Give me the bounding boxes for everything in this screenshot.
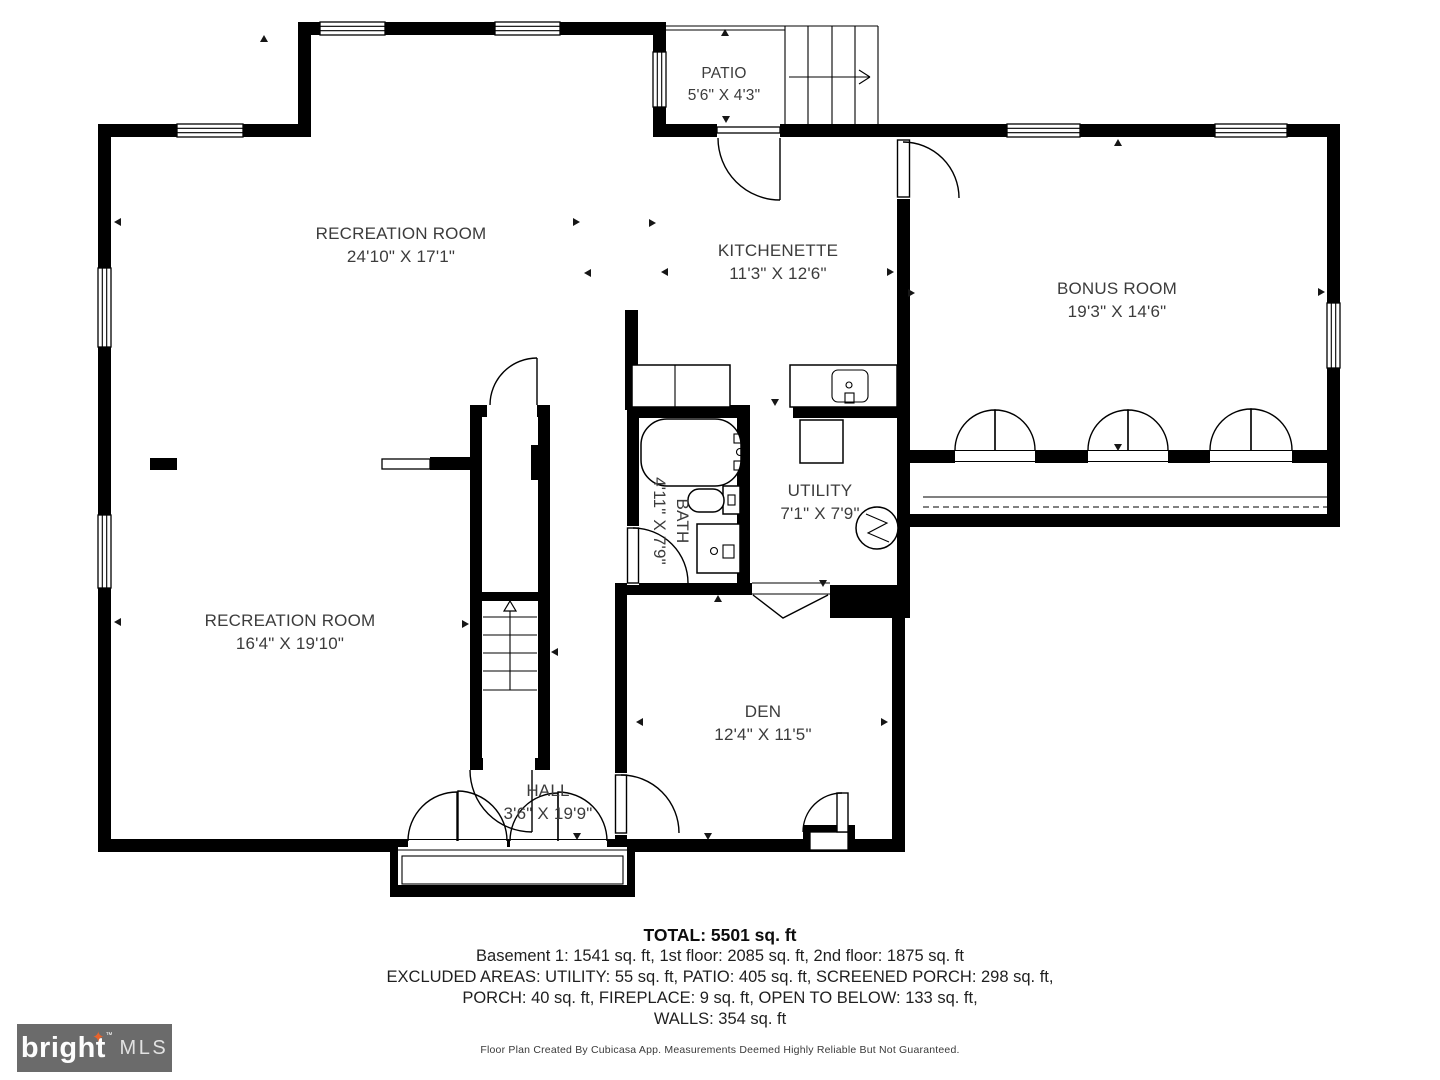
room-name: PATIO [688,63,761,85]
summary-excluded-2: PORCH: 40 sq. ft, FIREPLACE: 9 sq. ft, O… [0,988,1440,1009]
window [1215,124,1287,137]
room-name: RECREATION ROOM [205,609,376,632]
window [1327,303,1340,368]
front-stoop [390,847,635,897]
summary-total: TOTAL: 5501 sq. ft [0,925,1440,946]
floor-plan-page: PATIO 5'6" X 4'3" RECREATION ROOM 24'10"… [0,0,1440,1080]
window [320,22,385,35]
area-summary: TOTAL: 5501 sq. ft Basement 1: 1541 sq. … [0,925,1440,1030]
window [98,268,111,347]
stairs-direction-arrow [789,70,870,84]
window [177,124,243,137]
window [98,515,111,588]
room-dims: 12'4" X 11'5" [714,723,811,746]
interior-stairs [483,601,537,690]
summary-walls: WALLS: 354 sq. ft [0,1009,1440,1030]
room-dims: 7'1" X 7'9" [780,502,859,525]
room-name: UTILITY [780,479,859,502]
room-name: BATH [671,477,694,565]
room-dims: 11'3" X 12'6" [718,262,838,285]
room-name: RECREATION ROOM [316,222,487,245]
room-name: HALL [503,779,592,802]
den-exterior-door [803,793,855,852]
room-dims: 4'11" X 7'9" [648,477,671,565]
room-dims: 3'6" X 19'9" [503,802,592,825]
room-label-recreation-room-upper: RECREATION ROOM 24'10" X 17'1" [316,222,487,268]
window [653,52,666,107]
room-dims: 19'3" X 14'6" [1057,300,1177,323]
room-name: KITCHENETTE [718,239,838,262]
bright-mls-logo: bright✦™MLS [17,1024,172,1072]
bathtub [641,419,741,486]
summary-floors: Basement 1: 1541 sq. ft, 1st floor: 2085… [0,946,1440,967]
star-icon: ✦ [92,1028,105,1046]
trademark-symbol: ™ [106,1032,113,1039]
room-dims: 5'6" X 4'3" [688,85,761,107]
room-label-kitchenette: KITCHENETTE 11'3" X 12'6" [718,239,838,285]
room-name: BONUS ROOM [1057,277,1177,300]
window [495,22,560,35]
summary-excluded-1: EXCLUDED AREAS: UTILITY: 55 sq. ft, PATI… [0,967,1440,988]
room-label-utility: UTILITY 7'1" X 7'9" [780,479,859,525]
room-label-bonus-room: BONUS ROOM 19'3" X 14'6" [1057,277,1177,323]
window [1007,124,1080,137]
room-label-hall: HALL 3'6" X 19'9" [503,779,592,825]
utility-appliance [800,420,843,463]
room-label-bath: BATH 4'11" X 7'9" [648,477,694,565]
screened-porch [923,497,1327,507]
room-label-den: DEN 12'4" X 11'5" [714,700,811,746]
room-label-patio: PATIO 5'6" X 4'3" [688,63,761,107]
kitchenette-counters [632,365,897,407]
room-dims: 16'4" X 19'10" [205,632,376,655]
floor-plan-drawing [0,0,1440,1080]
railing-half-wall [382,459,430,469]
logo-suffix-text: MLS [120,1037,169,1060]
disclaimer-text: Floor Plan Created By Cubicasa App. Meas… [0,1044,1440,1056]
room-label-recreation-room-lower: RECREATION ROOM 16'4" X 19'10" [205,609,376,655]
toilet-tank [723,486,740,514]
room-dims: 24'10" X 17'1" [316,245,487,268]
room-name: DEN [714,700,811,723]
